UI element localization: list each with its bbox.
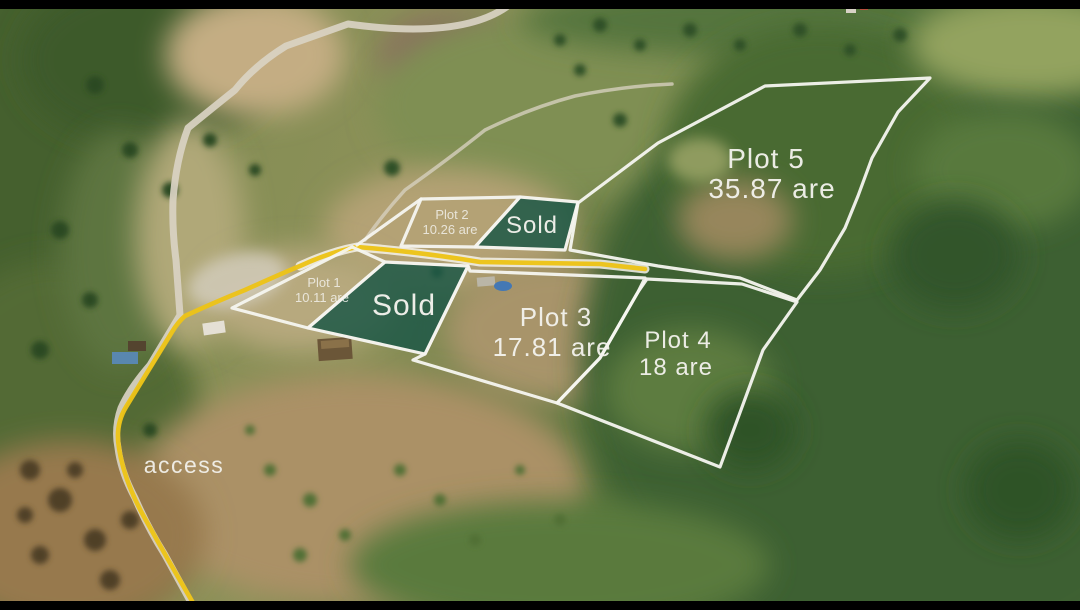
- plot-2-name-label: Plot 2: [435, 207, 468, 222]
- blue-tarp-structure: [112, 352, 138, 364]
- plot-2-area-label: 10.26 are: [423, 222, 478, 237]
- plot-1-name-label: Plot 1: [307, 275, 340, 290]
- plot-1-sold-label: Sold: [372, 289, 436, 322]
- plot-3-area-label: 17.81 are: [493, 332, 612, 362]
- plot-1-area-label: 10.11 are: [295, 290, 349, 305]
- dark-shed: [128, 341, 146, 351]
- pond: [494, 281, 512, 291]
- plot-map-canvas: Plot 1 10.11 are Sold Plot 2 10.26 are S…: [0, 0, 1080, 610]
- plot-3-name-label: Plot 3: [520, 302, 593, 332]
- aerial-photo-land-plot-map: Plot 1 10.11 are Sold Plot 2 10.26 are S…: [0, 0, 1080, 610]
- plot-5-area-label: 35.87 are: [708, 173, 835, 204]
- plot-5-name-label: Plot 5: [727, 143, 805, 174]
- greenhouse-tarp: [477, 276, 496, 287]
- access-road-label: access: [144, 452, 225, 478]
- plot-4-name-label: Plot 4: [644, 327, 711, 354]
- plot-4-area-label: 18 are: [639, 354, 713, 381]
- letterbox-top: [0, 0, 1080, 9]
- plot-2-sold-label: Sold: [506, 212, 558, 239]
- letterbox-bottom: [0, 601, 1080, 610]
